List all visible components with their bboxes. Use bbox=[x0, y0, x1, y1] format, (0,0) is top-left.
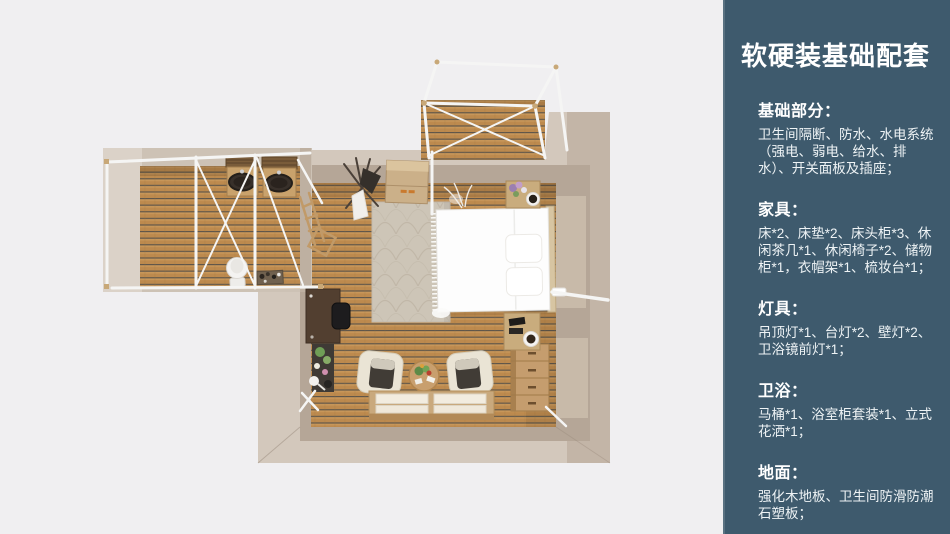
floorplan-render bbox=[0, 0, 723, 534]
spec-body-lighting: 吊顶灯*1、台灯*2、壁灯*2、卫浴镜前灯*1； bbox=[758, 324, 934, 358]
spec-section-basics: 基础部分： 卫生间隔断、防水、水电系统（强电、弱电、给水、排水）、开关面板及插座… bbox=[758, 97, 934, 177]
panel-title: 软硬装基础配套 bbox=[741, 36, 934, 73]
mat-platform bbox=[369, 391, 494, 420]
spec-body-furniture: 床*2、床垫*2、床头柜*3、休闲茶几*1、休闲椅子*2、储物柜*1，衣帽架*1… bbox=[758, 225, 934, 276]
pillow bbox=[506, 267, 542, 296]
spec-section-flooring: 地面： 强化木地板、卫生间防滑防潮石塑板； bbox=[758, 459, 934, 522]
coffee-table bbox=[409, 361, 439, 391]
pillow bbox=[506, 234, 542, 263]
bath-accessories bbox=[257, 270, 284, 284]
storage-cabinet bbox=[385, 160, 428, 203]
nightstand-bottom bbox=[504, 313, 540, 350]
spec-body-flooring: 强化木地板、卫生间防滑防潮石塑板； bbox=[758, 488, 934, 522]
spec-body-bathroom: 马桶*1、浴室柜套装*1、立式花洒*1； bbox=[758, 406, 934, 440]
flower-stand bbox=[309, 344, 334, 392]
spec-body-basics: 卫生间隔断、防水、水电系统（强电、弱电、给水、排水）、开关面板及插座； bbox=[758, 126, 934, 177]
spec-panel: 软硬装基础配套 基础部分： 卫生间隔断、防水、水电系统（强电、弱电、给水、排水）… bbox=[723, 0, 950, 534]
armchair-right bbox=[446, 350, 494, 396]
bed bbox=[430, 206, 556, 318]
spec-section-furniture: 家具： 床*2、床垫*2、床头柜*3、休闲茶几*1、休闲椅子*2、储物柜*1，衣… bbox=[758, 196, 934, 276]
desk-chair bbox=[332, 303, 350, 329]
spec-heading-bathroom: 卫浴： bbox=[758, 377, 934, 401]
spec-heading-basics: 基础部分： bbox=[758, 97, 934, 121]
spec-section-bathroom: 卫浴： 马桶*1、浴室柜套装*1、立式花洒*1； bbox=[758, 377, 934, 440]
armchair-left bbox=[356, 350, 404, 396]
chest-of-drawers bbox=[511, 344, 549, 411]
spec-section-lighting: 灯具： 吊顶灯*1、台灯*2、壁灯*2、卫浴镜前灯*1； bbox=[758, 295, 934, 358]
slide: 软硬装基础配套 基础部分： 卫生间隔断、防水、水电系统（强电、弱电、给水、排水）… bbox=[0, 0, 950, 534]
spec-heading-lighting: 灯具： bbox=[758, 295, 934, 319]
spec-heading-furniture: 家具： bbox=[758, 196, 934, 220]
nightstand-top bbox=[506, 181, 540, 208]
spec-heading-flooring: 地面： bbox=[758, 459, 934, 483]
